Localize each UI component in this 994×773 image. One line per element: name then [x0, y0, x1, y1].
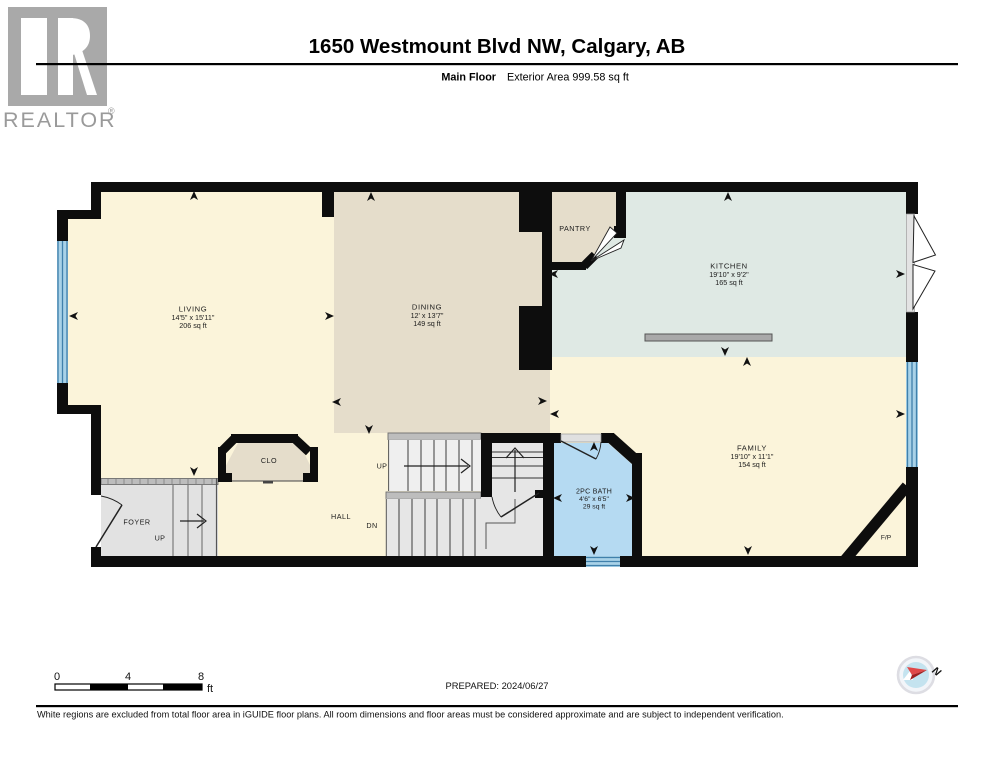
svg-text:UP: UP — [377, 462, 388, 471]
svg-text:1650 Westmount Blvd NW, Calgar: 1650 Westmount Blvd NW, Calgary, AB — [309, 35, 686, 58]
svg-text:FOYER: FOYER — [123, 518, 150, 527]
svg-text:154 sq ft: 154 sq ft — [738, 460, 766, 469]
svg-text:4'6" x 6'5": 4'6" x 6'5" — [579, 496, 609, 503]
svg-text:206 sq ft: 206 sq ft — [179, 321, 207, 330]
svg-text:29 sq ft: 29 sq ft — [583, 504, 605, 511]
svg-text:4: 4 — [125, 671, 131, 683]
svg-text:0: 0 — [54, 671, 60, 683]
svg-text:®: ® — [108, 106, 115, 116]
svg-text:F/P: F/P — [881, 535, 892, 542]
svg-text:PANTRY: PANTRY — [559, 224, 591, 233]
svg-text:HALL: HALL — [331, 512, 351, 521]
svg-text:Main Floor: Main Floor — [441, 72, 496, 84]
svg-text:2PC BATH: 2PC BATH — [576, 489, 612, 496]
svg-text:ft: ft — [207, 683, 213, 695]
svg-text:8: 8 — [198, 671, 204, 683]
svg-text:149 sq ft: 149 sq ft — [413, 319, 441, 328]
svg-text:CLO: CLO — [261, 456, 277, 465]
svg-text:Exterior Area 999.58 sq ft: Exterior Area 999.58 sq ft — [507, 72, 629, 84]
svg-text:White regions are excluded fro: White regions are excluded from total fl… — [37, 710, 784, 720]
svg-text:DN: DN — [366, 521, 377, 530]
svg-text:UP: UP — [155, 534, 166, 543]
svg-text:PREPARED: 2024/06/27: PREPARED: 2024/06/27 — [445, 680, 548, 691]
svg-text:REALTOR: REALTOR — [3, 108, 117, 132]
svg-text:165 sq ft: 165 sq ft — [715, 278, 743, 287]
